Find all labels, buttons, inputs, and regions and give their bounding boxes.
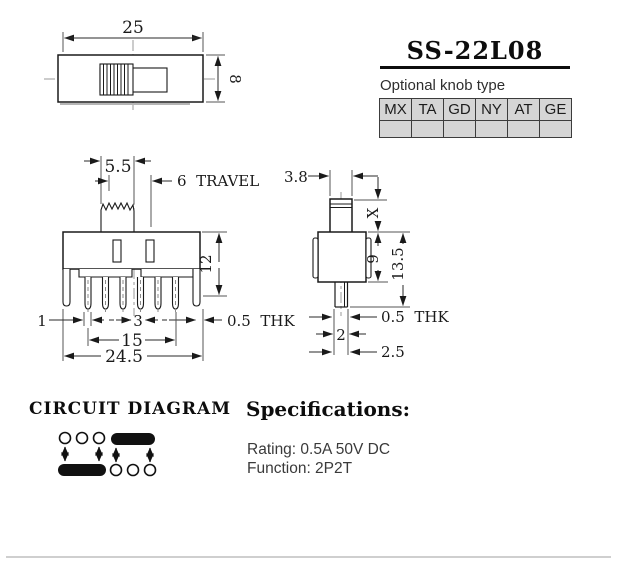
dim-side-knob-width: 3.8 <box>284 168 308 186</box>
knob-type-cell: MX <box>380 99 412 121</box>
side-clip-left <box>313 238 318 278</box>
dim-side-total-height: 13.5 <box>389 247 407 280</box>
front-dim-pin-span: 15 <box>88 312 176 351</box>
spec-function: Function: 2P2T <box>247 460 352 478</box>
front-dim-overall: 24.5 <box>65 347 202 367</box>
side-body <box>318 232 366 282</box>
page-bottom-rule <box>6 556 611 558</box>
knob-type-empty-row <box>380 121 572 138</box>
side-dim-pin-offset: 2.5 <box>309 343 405 361</box>
circuit-bar-right <box>111 433 155 445</box>
circuit-symbols <box>58 433 156 477</box>
dim-front-knob-width: 5.5 <box>104 157 131 177</box>
specifications-heading: Specifications: <box>246 397 410 421</box>
front-leg-left <box>63 269 70 306</box>
dim-front-overall: 24.5 <box>105 347 143 367</box>
front-dim-body-height: 12 <box>197 232 227 296</box>
front-pins <box>85 277 179 313</box>
knob-type-cell: TA <box>412 99 444 121</box>
dim-front-pin-pitch: 3 <box>133 312 143 330</box>
dim-front-thk: 0.5 THK <box>227 312 295 330</box>
front-body <box>63 232 200 269</box>
front-knob <box>101 203 134 232</box>
dim-top-height: 8 <box>226 74 244 84</box>
side-dim-thk: 0.5 THK <box>309 308 449 326</box>
front-tab-right <box>141 269 193 277</box>
part-number-title: SS-22L08 <box>407 36 544 65</box>
dim-side-knob-height: X <box>364 207 382 218</box>
knob-type-cell: AT <box>508 99 540 121</box>
dim-top-width: 25 <box>122 18 144 38</box>
front-tab-left <box>79 269 132 277</box>
knob-type-header-row: MX TA GD NY AT GE <box>380 99 572 121</box>
title-underline <box>380 66 570 69</box>
circuit-bar-left <box>58 464 106 476</box>
side-view: 3.8 X 9 <box>284 168 449 361</box>
dim-side-body-height: 9 <box>364 254 382 264</box>
dim-front-edge-offset: 1 <box>37 312 47 330</box>
dim-side-pin-width: 2 <box>336 326 346 344</box>
spec-rating: Rating: 0.5A 50V DC <box>247 441 390 459</box>
front-leg-right <box>193 269 200 306</box>
knob-type-cell: NY <box>476 99 508 121</box>
circuit-diagram-heading: CIRCUIT DIAGRAM <box>29 399 231 419</box>
dim-side-pin-offset: 2.5 <box>381 343 405 361</box>
knob-type-cell: GD <box>444 99 476 121</box>
dim-front-body-height: 12 <box>197 254 215 273</box>
front-slot-left <box>113 240 121 262</box>
title-block: SS-22L08 <box>380 36 570 65</box>
side-dim-knob-width: 3.8 <box>284 168 378 196</box>
knob-type-table: MX TA GD NY AT GE <box>379 98 572 138</box>
top-view-knob <box>100 64 133 95</box>
front-view: 5.5 6 TRAVEL 12 <box>37 156 295 367</box>
top-view: 25 8 <box>44 18 244 110</box>
datasheet-page: 25 8 <box>0 0 617 567</box>
knob-type-cell: GE <box>540 99 572 121</box>
front-slot-right <box>146 240 154 262</box>
dim-front-travel: 6 TRAVEL <box>177 172 259 190</box>
technical-drawing: 25 8 <box>0 0 617 567</box>
front-dim-chain: 1 3 0.5 THK <box>37 309 295 361</box>
front-dim-knob-width: 5.5 <box>84 156 151 204</box>
circuit-pole-right <box>111 433 156 476</box>
knob-table-caption: Optional knob type <box>380 77 505 94</box>
dim-side-thk: 0.5 THK <box>381 308 449 326</box>
side-dim-knob-height: X <box>354 177 387 231</box>
circuit-pole-left <box>58 433 106 477</box>
